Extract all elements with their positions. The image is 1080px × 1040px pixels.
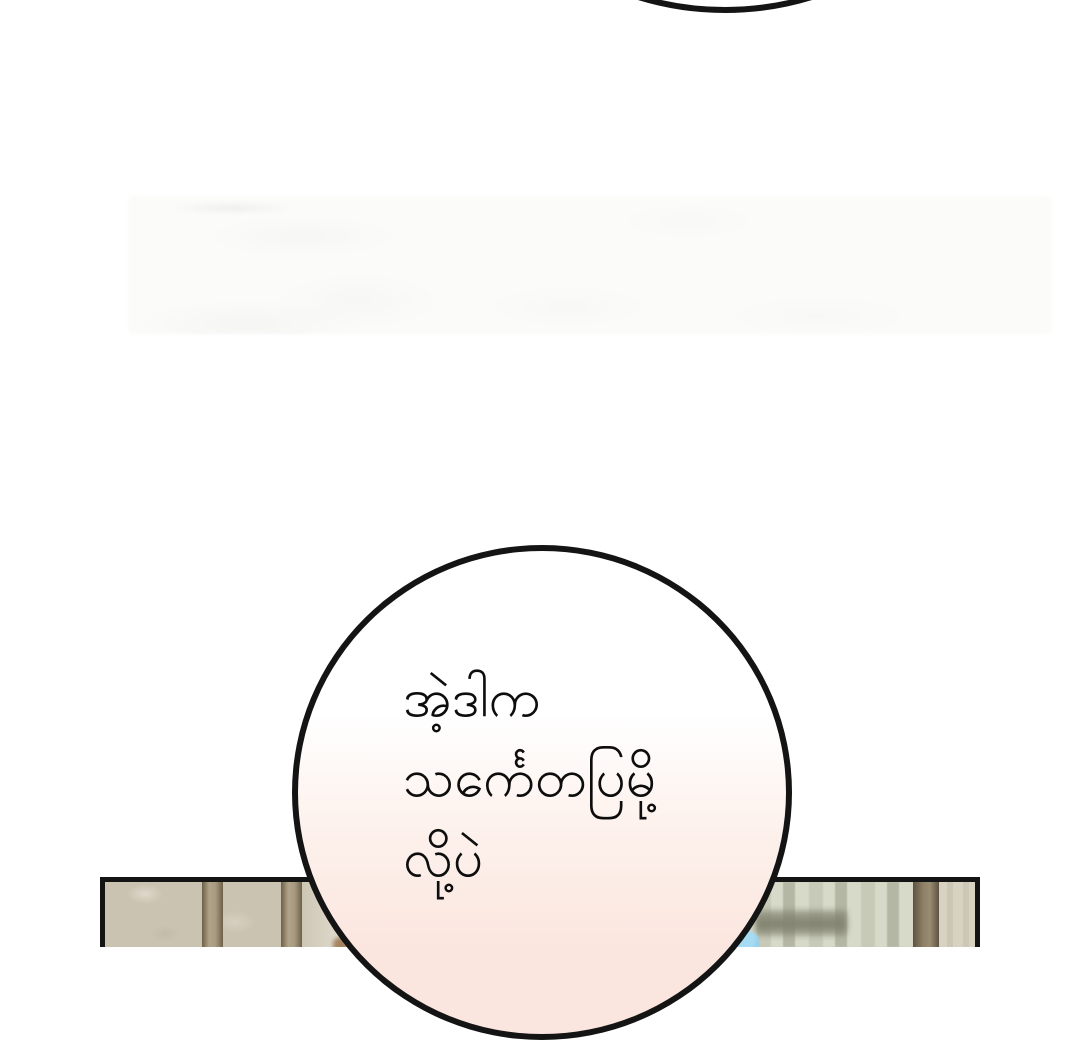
faded-ghost-panel (128, 196, 1052, 334)
speech-bubble: အဲ့ဒါက သင်္ကေတပြမို့ လို့ပဲ (292, 545, 792, 1040)
speech-text-line-3: လို့ပဲ (403, 819, 733, 899)
speech-text: အဲ့ဒါက သင်္ကေတပြမို့ လို့ပဲ (403, 659, 733, 899)
partial-speech-bubble-top (427, 0, 1023, 13)
right-wall-pillar (913, 882, 939, 947)
right-wall (939, 882, 980, 947)
blurred-shelf (755, 910, 847, 936)
wall-pillar-left (202, 882, 223, 947)
speech-text-line-2: သင်္ကေတပြမို့ (403, 739, 733, 819)
speech-text-line-1: အဲ့ဒါက (403, 659, 733, 739)
wall-pillar-right (281, 882, 302, 947)
